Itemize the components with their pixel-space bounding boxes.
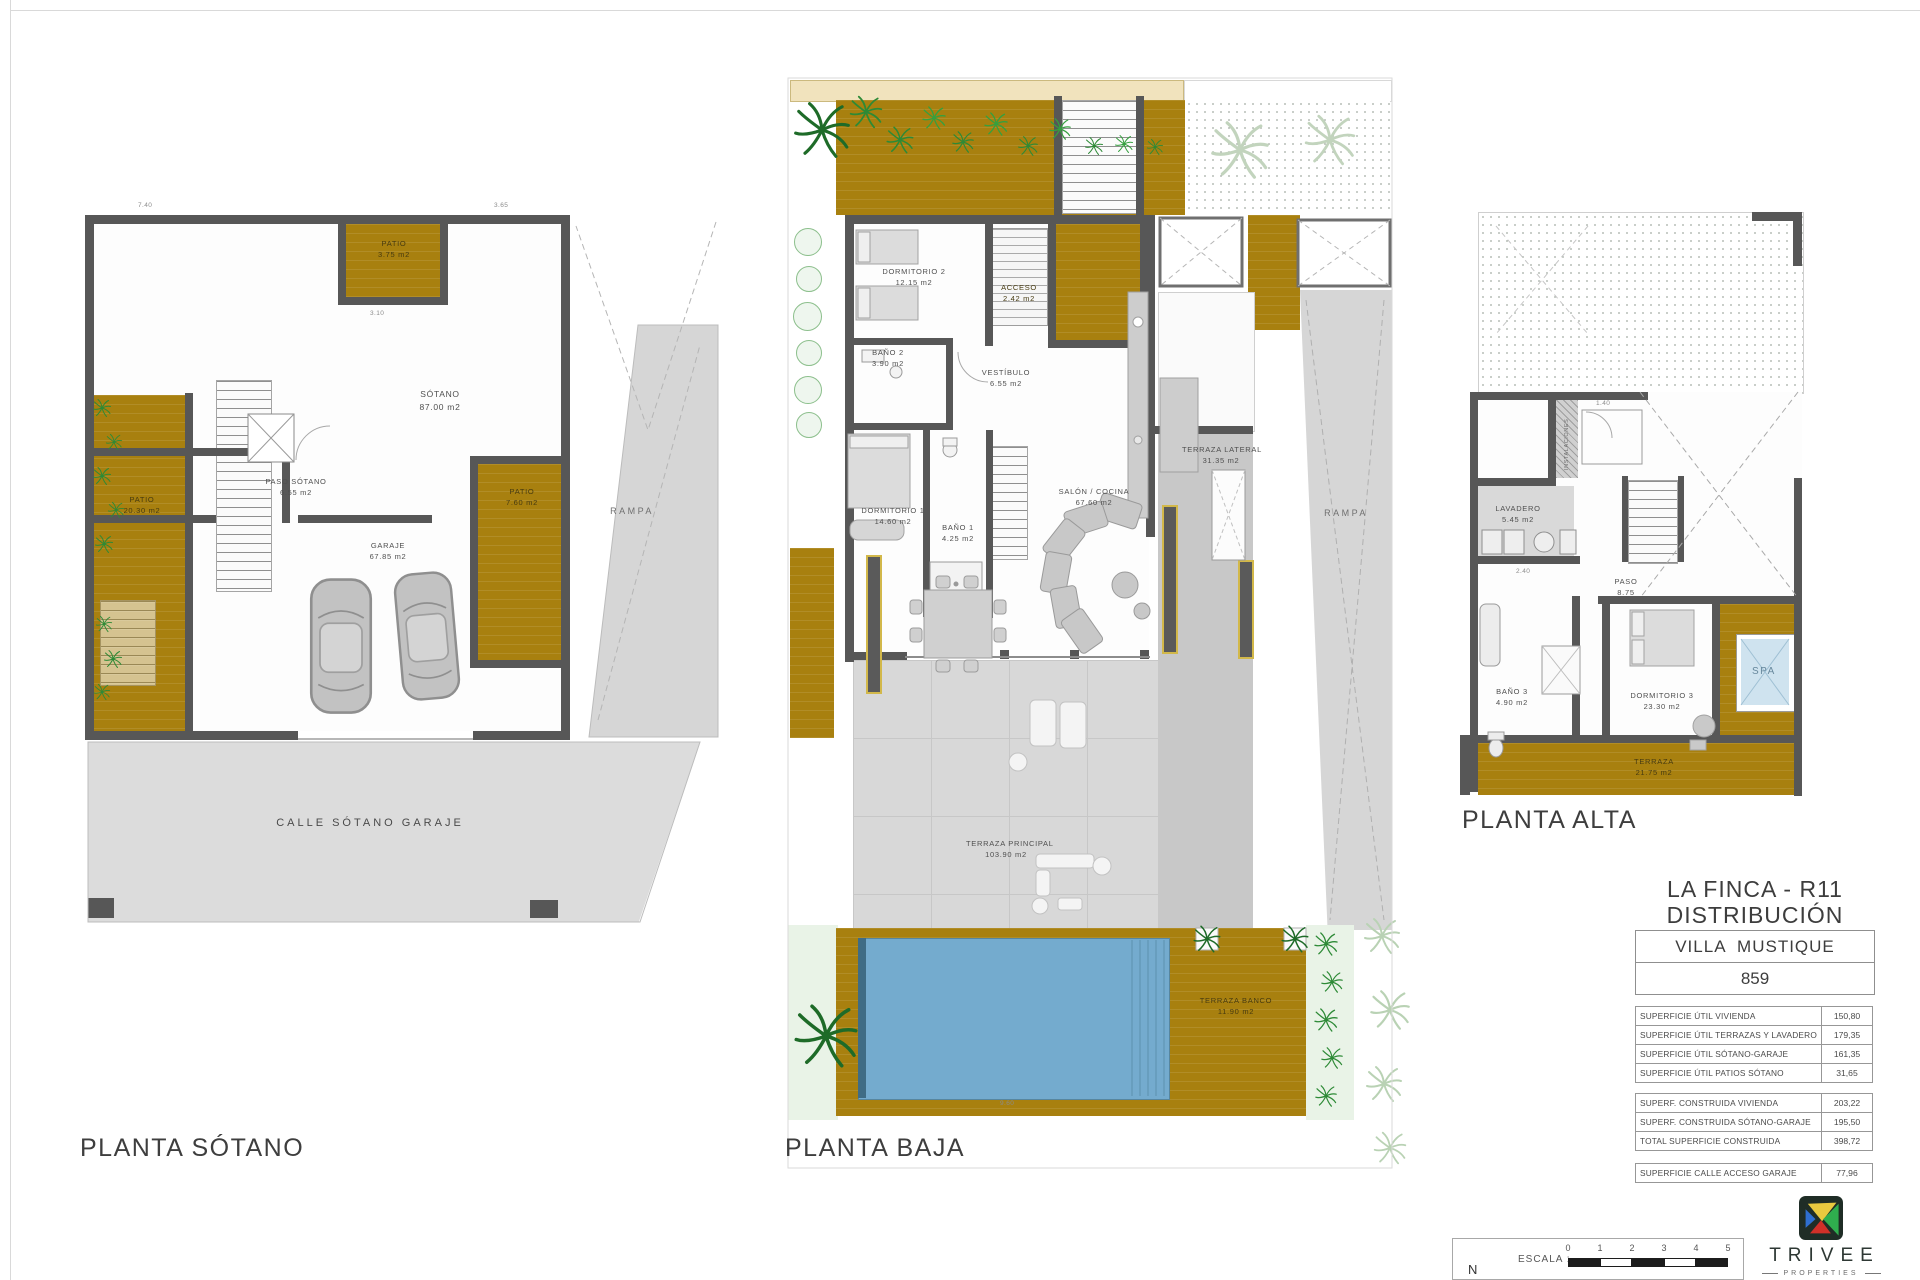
rampa-baja-fill [1300, 290, 1392, 930]
page-border-left [10, 0, 11, 1280]
room-name: DORMITORIO 2 [876, 266, 952, 277]
room-name: BAÑO 3 [1476, 686, 1548, 697]
main-stairs [992, 446, 1028, 560]
calle-fill [88, 742, 700, 922]
dimension-text: 7.40 [138, 202, 152, 209]
room-area: 4.90 m2 [1476, 697, 1548, 708]
room-name: PATIO [356, 238, 432, 249]
wall [1470, 735, 1802, 743]
table-row: SUPERFICIE ÚTIL TERRAZAS Y LAVADERO 179,… [1635, 1025, 1873, 1045]
wall [1548, 392, 1556, 486]
wardrobe [992, 228, 1048, 326]
wall [338, 297, 448, 305]
table-row: TOTAL SUPERFICIE CONSTRUIDA 398,72 [1635, 1131, 1873, 1151]
bush-icon [796, 266, 822, 292]
brand-dash [1865, 1273, 1881, 1274]
wall [1548, 392, 1648, 400]
wall [185, 393, 193, 740]
room-label: SALÓN / COCINA 67.60 m2 [1055, 486, 1133, 509]
room-name: TERRAZA [1614, 756, 1694, 767]
wall [1054, 96, 1062, 218]
room-label: PASO SÓTANO 6.55 m2 [248, 476, 344, 499]
rampa-label: RAMPA [1314, 508, 1378, 518]
page-border-top [10, 10, 1920, 11]
scale-segment [1600, 1258, 1632, 1267]
garage-door-gap [298, 731, 473, 740]
row-label: SUPERF. CONSTRUIDA VIVIENDA [1636, 1098, 1821, 1108]
wall [470, 456, 478, 668]
table-superficie-construida: SUPERF. CONSTRUIDA VIVIENDA 203,22 SUPER… [1635, 1094, 1873, 1151]
room-area: 6.55 m2 [968, 378, 1044, 389]
wall [338, 219, 346, 303]
room-name: ACCESO [982, 282, 1056, 293]
glass-pier [1070, 650, 1079, 659]
room-name: TERRAZA BANCO [1196, 995, 1276, 1006]
room-label: GARAJE 67.85 m2 [350, 540, 426, 563]
row-label: SUPERFICIE ÚTIL VIVIENDA [1636, 1011, 1821, 1021]
plan-title-alta: PLANTA ALTA [1462, 806, 1637, 835]
wall [1622, 476, 1628, 562]
wall [923, 610, 993, 617]
room-label: PATIO 3.75 m2 [356, 238, 432, 261]
room-name: PASO [1590, 576, 1662, 587]
pool [858, 938, 1170, 1100]
room-name: PATIO [104, 494, 180, 505]
table-row: SUPERFICIE ÚTIL SÓTANO-GARAJE 161,35 [1635, 1044, 1873, 1064]
room-area: 3.90 m2 [852, 358, 924, 369]
wall [1794, 478, 1802, 796]
room-area: 6.55 m2 [248, 487, 344, 498]
wall-stub [530, 900, 558, 918]
wall [1140, 215, 1148, 348]
table-row: SUPERFICIE ÚTIL VIVIENDA 150,80 [1635, 1006, 1873, 1026]
row-label: SUPERFICIE ÚTIL PATIOS SÓTANO [1636, 1068, 1821, 1078]
brand-subtitle: PROPERTIES [1756, 1270, 1886, 1277]
pool-edge [858, 938, 866, 1098]
scale-segment [1568, 1258, 1600, 1267]
dimension-text: 2.40 [1516, 568, 1530, 575]
roof-gravel [1478, 212, 1804, 394]
plan-title-baja: PLANTA BAJA [785, 1134, 965, 1163]
room-area: 23.30 m2 [1622, 701, 1702, 712]
room-area: 87.00 m2 [392, 401, 488, 414]
room-name: VESTÍBULO [968, 367, 1044, 378]
room-label: BAÑO 3 4.90 m2 [1476, 686, 1548, 709]
bush-icon [794, 228, 822, 256]
bush-icon [794, 376, 822, 404]
room-name: DORMITORIO 1 [855, 505, 931, 516]
floor-plan-sheet: PATIO 3.75 m2 SÓTANO 87.00 m2 PASO SÓTAN… [0, 0, 1920, 1280]
villa-box: VILLA MUSTIQUE 859 [1635, 930, 1875, 995]
wall [1470, 392, 1556, 400]
dimension-text: 9.60 [1000, 1100, 1014, 1107]
patio-top-fill [346, 224, 440, 299]
wall [1470, 478, 1556, 486]
wall [470, 456, 570, 464]
room-label: LAVADERO 5.45 m2 [1482, 503, 1554, 526]
wall [298, 515, 432, 523]
top-strip-cream [790, 80, 1184, 102]
room-label: PASO 8.75 [1590, 576, 1662, 599]
scale-segment [1664, 1258, 1696, 1267]
scale-segment [1632, 1258, 1664, 1267]
table-row: SUPERF. CONSTRUIDA SÓTANO-GARAJE 195,50 [1635, 1112, 1873, 1132]
row-value: 161,35 [1821, 1045, 1872, 1063]
row-label: TOTAL SUPERFICIE CONSTRUIDA [1636, 1136, 1821, 1146]
bush-icon [796, 340, 822, 366]
wall [853, 423, 953, 430]
room-name: PASO SÓTANO [248, 476, 344, 487]
row-value: 195,50 [1821, 1113, 1872, 1131]
room-label: BAÑO 1 4.25 m2 [922, 522, 994, 545]
ochre-side [1248, 215, 1300, 330]
glass-pier [1140, 650, 1149, 659]
wall [440, 219, 448, 303]
wall-stub [1793, 212, 1802, 266]
north-label: N [1468, 1262, 1477, 1277]
brand-block: TRIVEE PROPERTIES [1756, 1196, 1886, 1277]
wall [1678, 476, 1684, 562]
instalaciones-label: INSTALACIONES [1564, 419, 1570, 470]
sheet-title: DISTRIBUCIÓN [1632, 902, 1878, 929]
side-walk [1158, 292, 1255, 432]
wall [946, 345, 953, 430]
row-value: 150,80 [1821, 1007, 1872, 1025]
scale-tick: 5 [1723, 1243, 1733, 1253]
garden-right-pool [1306, 925, 1354, 1120]
room-name: TERRAZA PRINCIPAL [966, 838, 1046, 849]
room-area: 67.60 m2 [1055, 497, 1133, 508]
room-label: DORMITORIO 2 12.15 m2 [876, 266, 952, 289]
glass-pier [1000, 650, 1009, 659]
dimension-text: 3.65 [494, 202, 508, 209]
row-label: SUPERFICIE CALLE ACCESO GARAJE [1636, 1168, 1821, 1178]
room-area: 21.75 m2 [1614, 767, 1694, 778]
alta-stairs [1628, 480, 1678, 564]
room-area: 3.75 m2 [356, 249, 432, 260]
room-area: 67.85 m2 [350, 551, 426, 562]
scale-tick: 4 [1691, 1243, 1701, 1253]
bush-icon [793, 302, 822, 331]
rampa-label: RAMPA [600, 506, 664, 516]
room-area: 31.35 m2 [1182, 455, 1260, 466]
wall [1572, 596, 1580, 743]
room-label: VESTÍBULO 6.55 m2 [968, 367, 1044, 390]
wall [1470, 392, 1478, 792]
scale-segment [1696, 1258, 1728, 1267]
plan-title-sotano: PLANTA SÓTANO [80, 1134, 304, 1163]
wall [1155, 426, 1253, 434]
room-name: BAÑO 1 [922, 522, 994, 533]
project-title: LA FINCA - R11 [1632, 876, 1878, 903]
room-name: GARAJE [350, 540, 426, 551]
table-row: SUPERFICIE ÚTIL PATIOS SÓTANO 31,65 [1635, 1063, 1873, 1083]
table-calle-acceso: SUPERFICIE CALLE ACCESO GARAJE 77,96 [1635, 1164, 1873, 1183]
wall [85, 215, 570, 224]
room-name: BAÑO 2 [852, 347, 924, 358]
room-area: 20.30 m2 [104, 505, 180, 516]
wall [1136, 96, 1144, 218]
room-name: PATIO [484, 486, 560, 497]
wall [470, 660, 570, 668]
scale-tick: 0 [1563, 1243, 1573, 1253]
table-superficie-util: SUPERFICIE ÚTIL VIVIENDA 150,80 SUPERFIC… [1635, 1007, 1873, 1083]
row-value: 77,96 [1821, 1164, 1872, 1182]
spa-label: SPA [1752, 666, 1776, 677]
room-area: 11.90 m2 [1196, 1006, 1276, 1017]
garden-gravel [1185, 100, 1390, 215]
table-row: SUPERFICIE CALLE ACCESO GARAJE 77,96 [1635, 1163, 1873, 1183]
room-area: 2.42 m2 [982, 293, 1056, 304]
room-area: 8.75 [1590, 587, 1662, 598]
brand-dash [1762, 1273, 1778, 1274]
wall [1602, 596, 1610, 743]
row-label: SUPERFICIE ÚTIL SÓTANO-GARAJE [1636, 1049, 1821, 1059]
row-value: 398,72 [1821, 1132, 1872, 1150]
wall [1712, 604, 1720, 735]
room-label: SÓTANO 87.00 m2 [392, 388, 488, 414]
planter [866, 555, 882, 694]
entry-steps [1062, 100, 1138, 214]
villa-name: VILLA MUSTIQUE [1636, 931, 1874, 963]
room-area: 7.60 m2 [484, 497, 560, 508]
bush-icon [796, 412, 822, 438]
wall [853, 338, 953, 345]
room-label: TERRAZA LATERAL 31.35 m2 [1182, 444, 1260, 467]
row-value: 203,22 [1821, 1094, 1872, 1112]
room-label: TERRAZA 21.75 m2 [1614, 756, 1694, 779]
room-area: 103.90 m2 [966, 849, 1046, 860]
acceso-fill [1052, 224, 1144, 344]
room-area: 14.60 m2 [855, 516, 931, 527]
room-name: DORMITORIO 3 [1622, 690, 1702, 701]
wall [85, 215, 94, 740]
wall-stub [1460, 735, 1470, 795]
room-label: TERRAZA PRINCIPAL 103.90 m2 [966, 838, 1046, 861]
row-label: SUPERFICIE ÚTIL TERRAZAS Y LAVADERO [1636, 1030, 1821, 1040]
room-name: LAVADERO [1482, 503, 1554, 514]
planter [1238, 560, 1254, 659]
villa-number: 859 [1636, 963, 1874, 994]
room-name: SÓTANO [392, 388, 488, 401]
wall [1470, 556, 1580, 564]
trivee-logo-icon [1799, 1196, 1843, 1240]
wall [1048, 340, 1148, 348]
brand-sub-text: PROPERTIES [1784, 1270, 1859, 1277]
table-row: SUPERF. CONSTRUIDA VIVIENDA 203,22 [1635, 1093, 1873, 1113]
wall [845, 215, 854, 662]
left-ochre-strip [790, 548, 834, 738]
room-label: ACCESO 2.42 m2 [982, 282, 1056, 305]
patio-stairs [100, 600, 156, 686]
scale-tick: 2 [1627, 1243, 1637, 1253]
room-label: BAÑO 2 3.90 m2 [852, 347, 924, 370]
planter [1162, 505, 1178, 654]
room-label: PATIO 7.60 m2 [484, 486, 560, 509]
dimension-text: 3.10 [370, 310, 384, 317]
wall [94, 448, 286, 456]
wall [845, 215, 1155, 224]
brand-name: TRIVEE [1763, 1245, 1886, 1267]
scale-tick: 3 [1659, 1243, 1669, 1253]
rampa-sotano-fill [585, 325, 718, 737]
top-strip-white [1184, 80, 1392, 102]
dimension-text: 1.40 [1596, 400, 1610, 407]
room-area: 5.45 m2 [1482, 514, 1554, 525]
scale-label: ESCALA : [1518, 1254, 1570, 1265]
row-label: SUPERF. CONSTRUIDA SÓTANO-GARAJE [1636, 1117, 1821, 1127]
row-value: 31,65 [1821, 1064, 1872, 1082]
room-label: PATIO 20.30 m2 [104, 494, 180, 517]
scale-tick: 1 [1595, 1243, 1605, 1253]
garden-left-pool [788, 925, 838, 1120]
room-label: DORMITORIO 1 14.60 m2 [855, 505, 931, 528]
room-name: TERRAZA LATERAL [1182, 444, 1260, 455]
room-name: SALÓN / COCINA [1055, 486, 1133, 497]
wall-stub [88, 898, 114, 918]
row-value: 179,35 [1821, 1026, 1872, 1044]
room-area: 12.15 m2 [876, 277, 952, 288]
calle-label: CALLE SÓTANO GARAJE [245, 817, 495, 829]
room-area: 4.25 m2 [922, 533, 994, 544]
room-label: DORMITORIO 3 23.30 m2 [1622, 690, 1702, 713]
room-label: TERRAZA BANCO 11.90 m2 [1196, 995, 1276, 1018]
